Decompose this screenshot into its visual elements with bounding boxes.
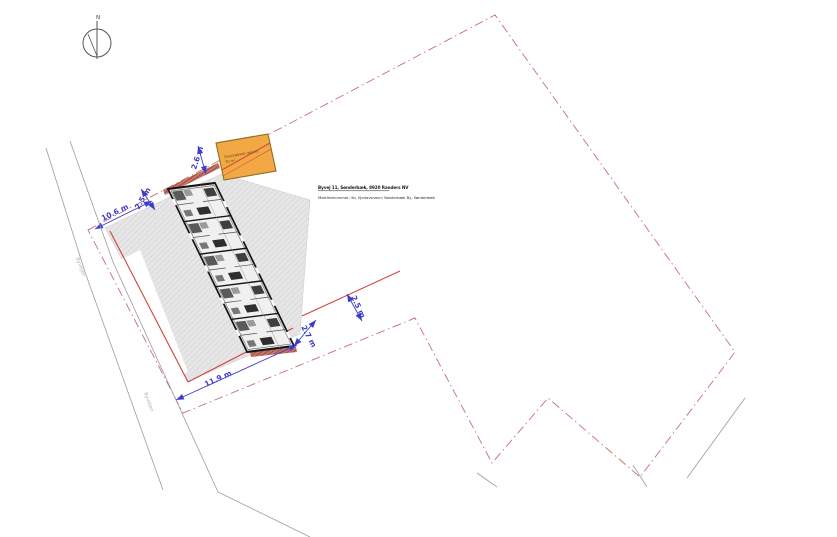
road-name-lower: Byvejen <box>142 392 154 413</box>
north-arrow: N <box>83 15 111 59</box>
dimension-right-offset: 2.5 m <box>347 294 367 321</box>
cadastral-info: Matrikelnummer: 5b, Ejerlavsnavn: Sønder… <box>318 195 436 200</box>
road-edge-tick <box>477 473 497 487</box>
dimension-label: 2.6 m <box>189 145 205 171</box>
address-title: Byvej 11, Sønderbæk, 8920 Randers NV <box>318 185 409 190</box>
site-plan-canvas: Overdækket carport 30 m² 2.5 m <box>0 0 837 537</box>
site-plan-page: Overdækket carport 30 m² 2.5 m <box>0 0 837 537</box>
road-name-upper: Byvejen <box>74 257 86 278</box>
road-edge-tick <box>633 465 647 487</box>
setback-line-right <box>302 271 400 316</box>
dimension-label: 2.5 m <box>349 294 367 319</box>
road-edge-line-right <box>687 398 745 478</box>
carport: Overdækket carport 30 m² <box>216 134 276 180</box>
dimension-garage-offset: 2.6 m <box>189 145 206 174</box>
title-block: Byvej 11, Sønderbæk, 8920 Randers NV Mat… <box>318 185 436 200</box>
north-label: N <box>96 15 100 21</box>
north-arrow-needle <box>88 34 97 56</box>
